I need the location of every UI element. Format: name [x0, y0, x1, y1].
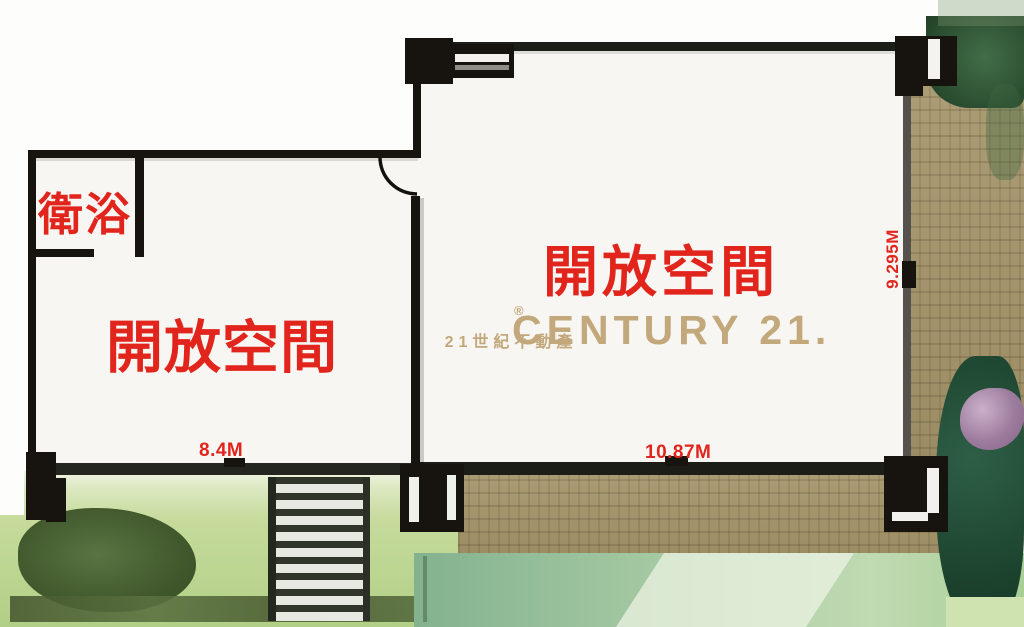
- dimension-label-9-295m: 9.295M: [883, 229, 903, 289]
- pillar-slit: [927, 468, 939, 513]
- foliage-over-deck: [986, 84, 1024, 180]
- pillar-bottom-left-step: [46, 478, 66, 522]
- wall-column-nub: [902, 261, 916, 288]
- pillar-bottom-center: [400, 464, 464, 532]
- window-icon: [450, 44, 514, 78]
- wood-deck-bottom: [458, 471, 940, 559]
- century21-subtitle: 21世紀不動產: [445, 328, 578, 352]
- dimension-label-10-87m: 10.87M: [645, 442, 711, 464]
- wall-center-partition: [411, 196, 420, 466]
- background-notch: [0, 471, 24, 515]
- open-space-label-right: 開放空間: [543, 227, 779, 307]
- wall-left-room-top: [28, 150, 418, 158]
- wall-left-room-bottom: [28, 463, 418, 475]
- dimension-label-8-4m: 8.4M: [199, 440, 243, 462]
- wall-center-upper: [413, 80, 421, 158]
- registered-trademark-icon: ®: [514, 303, 529, 318]
- pillar-slit: [892, 512, 928, 521]
- grass-corner: [946, 597, 1024, 627]
- pillar-slit: [447, 475, 456, 520]
- stairs-icon: [268, 477, 370, 621]
- pillar-slit: [928, 39, 940, 79]
- wall-bathroom-horizontal: [28, 249, 94, 257]
- wall-bathroom-vertical: [135, 155, 144, 257]
- tree-canopy-haze: [938, 0, 1024, 26]
- pillar-top-right: [895, 36, 957, 86]
- path-edge-line: [423, 556, 427, 622]
- pillar-top-right-step: [895, 84, 923, 96]
- bathroom-label: 衛浴: [38, 178, 132, 243]
- wall-right-room-top: [448, 42, 906, 51]
- window-pane: [455, 54, 509, 62]
- open-space-label-left: 開放空間: [106, 302, 338, 384]
- wall-left-room-left: [28, 150, 36, 456]
- floor-plan-canvas: 衛浴 開放空間 開放空間 8.4M 10.87M 9.295M CENTURY …: [0, 0, 1024, 627]
- pillar-top-left: [405, 38, 453, 84]
- window-pane: [455, 65, 509, 70]
- pillar-bottom-right: [884, 456, 948, 532]
- pillar-slit: [409, 477, 419, 522]
